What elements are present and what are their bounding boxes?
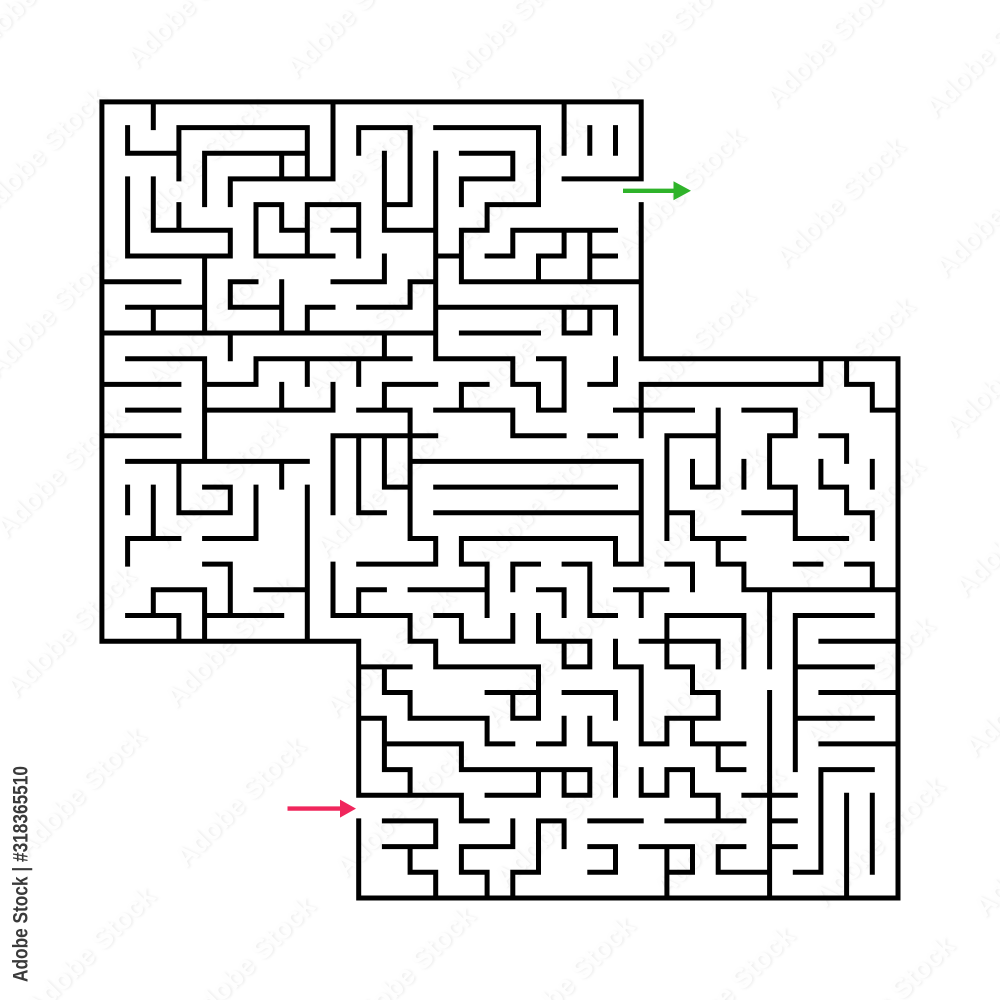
svg-text:Adobe Stock | #318365510: Adobe Stock | #318365510: [10, 766, 33, 982]
